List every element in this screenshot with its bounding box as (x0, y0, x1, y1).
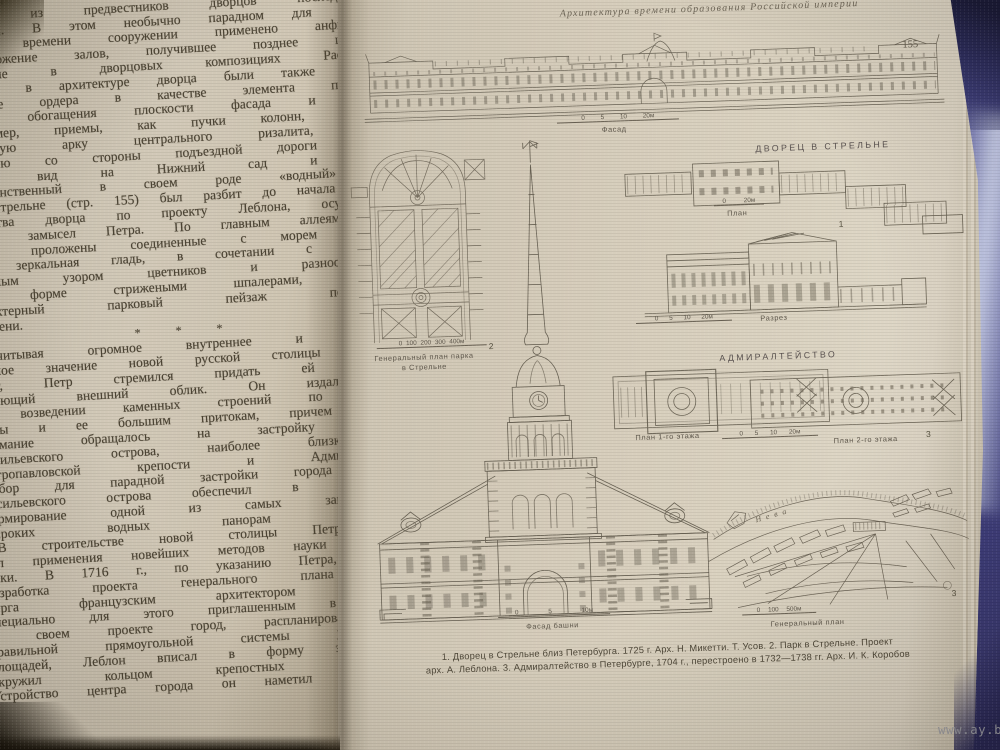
admiralty-genplan-illustration (703, 469, 972, 610)
shadow-corner-top-left (0, 0, 44, 72)
left-page-text: Микетти ...ского дворца ...одним из пред… (0, 0, 340, 705)
figure-1-number: 1 (839, 219, 844, 229)
watermark: www.ay.by (938, 722, 1000, 737)
genplan-scalebar: 0 100 500м (742, 605, 816, 616)
book-photo: Микетти ...ского дворца ...одним из пред… (0, 0, 1000, 750)
section-label: Разрез (744, 312, 804, 323)
admiralty-plan2-label: План 2-го этажа (818, 433, 913, 445)
shadow-corner-bottom-left (0, 702, 130, 750)
right-page: Архитектура времени образования Российск… (338, 0, 983, 750)
figure-3-number: 3 (926, 429, 931, 439)
strelna-plan-label: План (715, 208, 759, 219)
figure-3b-number: 3 (951, 588, 956, 598)
right-page-content: Архитектура времени образования Российск… (325, 0, 996, 750)
admiralty-title: АДМИРАЛТЕЙСТВО (687, 348, 869, 364)
genplan-label: Генеральный план (732, 616, 882, 630)
admiralty-tower-illustration (361, 129, 713, 624)
strelna-facade-illustration (354, 13, 952, 128)
tower-label: Фасад башни (502, 619, 602, 631)
left-page: Микетти ...ского дворца ...одним из пред… (0, 0, 340, 750)
